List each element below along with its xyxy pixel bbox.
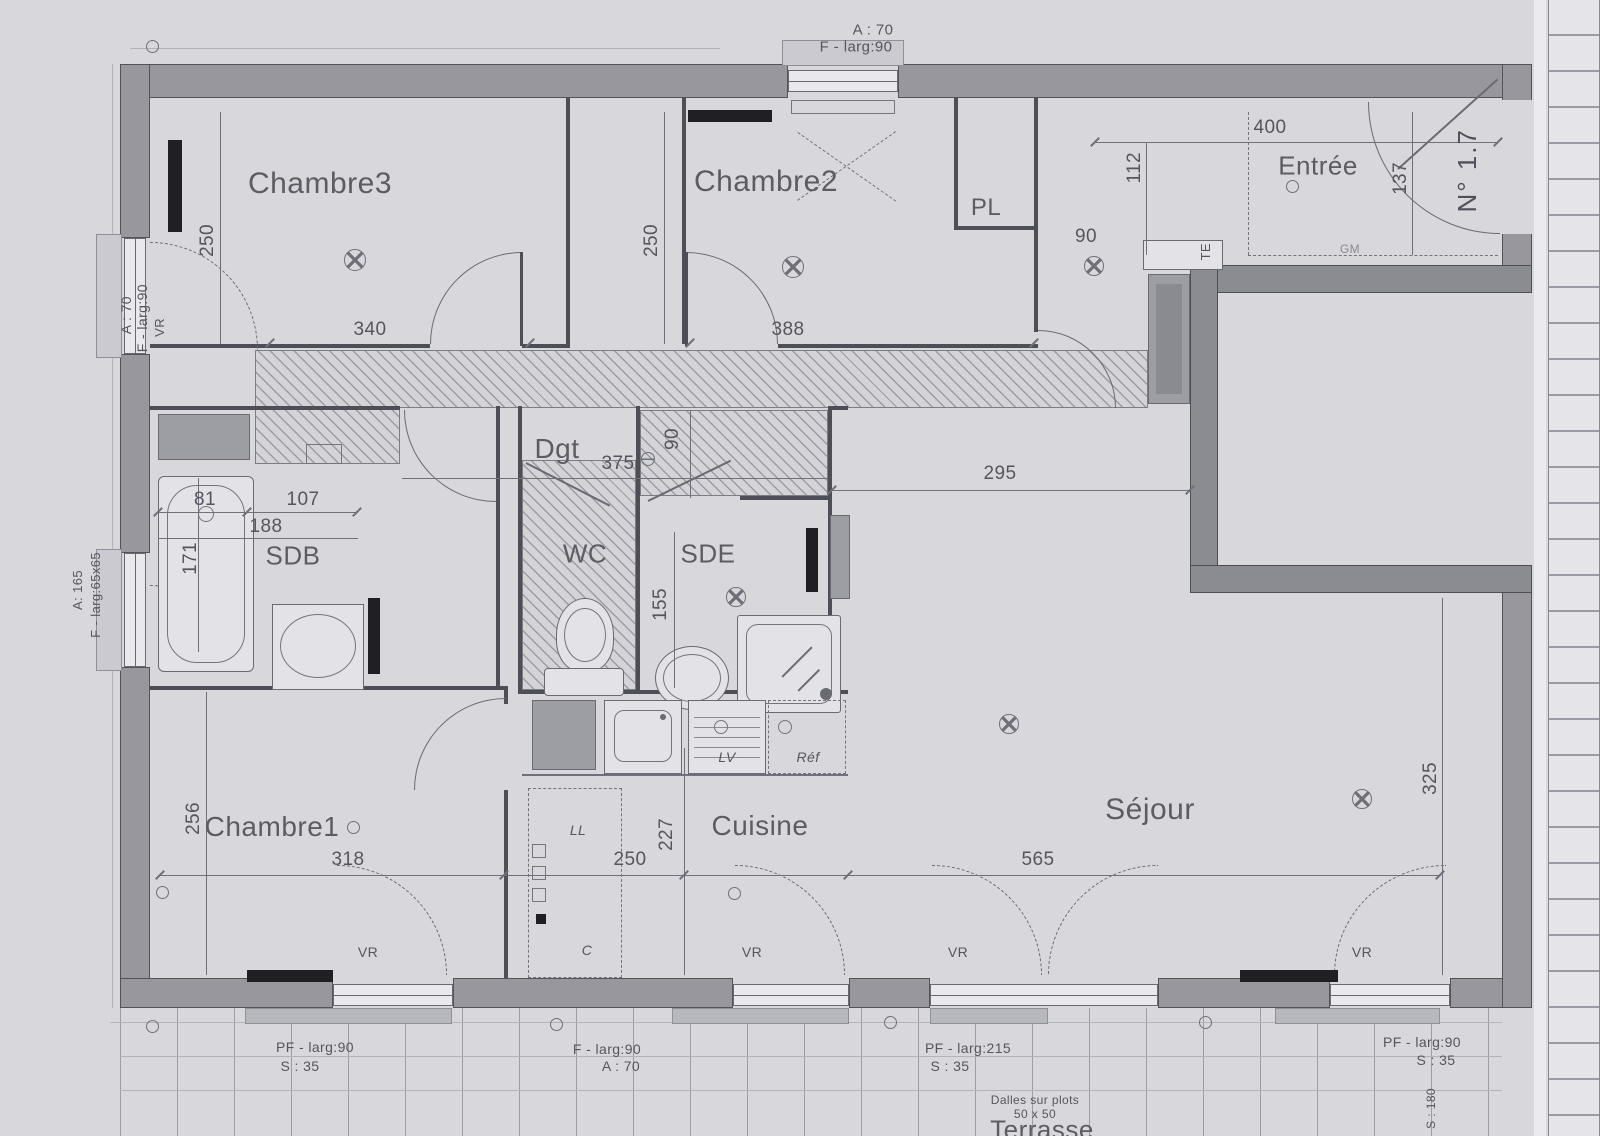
room-label-sde: SDE [681,539,736,570]
top-window-note-1: A : 70 [853,22,894,39]
vr-label: VR [742,944,762,960]
radiator-chambre2 [688,110,772,122]
top-window-note-2: F - larg:90 [820,39,893,56]
kitchen-unit [532,700,596,770]
window-left-lower [124,553,146,667]
void-wall-top [1190,265,1532,293]
dim-sejour-width: 565 [1022,849,1055,871]
dim-line [1412,112,1413,255]
dim-line [220,112,221,344]
wall-sdb-top [150,406,400,410]
room-label-entree: Entrée [1278,151,1358,182]
door-arc-chambre3 [430,252,522,344]
wall-sde-top [740,496,832,500]
vr-label: VR [948,944,968,960]
wall-chambre3-right [566,98,570,344]
left-upper-window-note-1: A : 70 [118,296,134,334]
sdb-washbasin [280,614,356,678]
fridge-label: Réf [797,749,820,765]
terrace-sill [1275,1008,1440,1024]
vr-label: VR [1352,944,1372,960]
floor-plan-scan: GM TE LV Réf LL C [0,0,1600,1136]
void-wall-left [1190,265,1218,593]
left-lower-window-note-2: F - larg:65x65 [88,552,103,638]
outlet-symbol [532,844,546,858]
terrace-sill [245,1008,452,1024]
ceiling-light-icon [782,256,804,278]
dim-line [158,512,358,513]
wall-pl-left [954,98,958,226]
corridor-floor [255,350,1148,408]
door-arc-sdb [404,410,496,502]
door-leaf-chambre3 [520,252,523,346]
dim-line [674,532,675,688]
window-chambre1 [333,984,453,1006]
dim-pl-gap: 90 [1075,226,1097,248]
wall-top-right [898,64,1532,98]
dishwasher-label: LV [718,749,735,765]
hob-symbol [778,720,792,734]
window-swing [1334,865,1446,975]
dim-chambre2-height: 250 [641,224,663,257]
duct-inner [1156,284,1182,394]
dim-line [160,875,1440,876]
wall-right-3 [1502,565,1532,1008]
wall-chambre1-right-2 [504,790,508,978]
room-label-chambre3: Chambre3 [248,167,392,201]
stair-strip [1548,0,1600,1136]
wall-left-3 [120,667,150,1008]
dim-line [832,490,1190,491]
light-point-icon [156,886,169,899]
dim-chain-line [130,48,720,49]
washer-label: LL [570,822,586,838]
bottom-note-4b: S : 35 [1417,1052,1456,1068]
sdb-duct [158,414,250,460]
vr-label: VR [358,944,378,960]
void-wall-bottom [1190,565,1532,593]
door-arc-chambre2 [686,252,778,344]
bottom-note-1a: PF - larg:90 [276,1039,354,1055]
wall-chambre2-bottom [778,344,1038,348]
wall-sdb-right [496,406,500,690]
wall-wc-right [636,406,640,693]
radiator-chambre1 [247,970,333,982]
terrace-sill [930,1008,1048,1024]
terrace-sill [672,1008,849,1024]
wall-pl-bottom [954,226,1038,230]
entree-dashed-edge [1248,112,1249,255]
dim-chambre3-height: 250 [197,224,219,257]
terrace-line [120,1090,1502,1091]
entree-dashed-edge [1248,255,1498,256]
room-label-dgt: Dgt [534,433,579,465]
ceiling-light-icon [726,587,746,607]
dim-cuisine-width: 250 [614,849,647,871]
light-point-icon [347,821,360,834]
radiator-chambre3 [168,140,182,232]
dim-line [684,748,685,975]
room-label-chambre2: Chambre2 [694,165,838,199]
datum-circle-icon [146,40,159,53]
wall-right-1 [1502,64,1532,102]
dim-hall-width: 295 [984,463,1017,485]
closet-label: C [582,942,593,958]
dim-entree-width: 400 [1254,117,1287,139]
dim-entree-door: 137 [1390,162,1412,195]
outlet-symbol [532,866,546,880]
light-point-icon [1286,180,1299,193]
wall-wc-left [518,406,522,693]
dim-dgt-width: 90 [662,428,684,450]
dim-chambre3-width: 340 [354,319,387,341]
sdb-radiator [368,598,380,674]
room-label-pl: PL [971,194,1001,222]
dim-line [664,112,665,344]
dim-line [158,538,358,539]
shower-drain [820,688,832,700]
terrace-grid [120,1008,1502,1136]
window-swing [337,865,447,975]
dim-sde-height: 155 [650,588,672,621]
dim-entree-height: 112 [1124,152,1146,184]
wall-bottom-1 [120,978,333,1008]
door-leaf-chambre2 [685,252,688,346]
wall-entree-left [1034,98,1038,332]
dim-sdb-height: 171 [180,542,202,575]
dim-line [690,410,691,498]
ceiling-light-icon [344,249,366,271]
window-swing [1048,865,1158,975]
counter-edge [522,774,848,776]
terrace-note-2: 50 x 50 [1014,1107,1056,1121]
wall-left-1 [120,64,150,238]
dim-chambre1-width: 318 [332,849,365,871]
vr-label-left: VR [152,318,167,337]
outlet-symbol [532,888,546,902]
dim-line [1146,142,1147,255]
apartment-number: N° 1.7 [1452,128,1483,213]
bottom-note-2b: A : 70 [602,1058,640,1074]
dim-chambre2-width: 388 [772,319,805,341]
wall-sde-top-stub [832,406,848,410]
bottom-note-4a: PF - larg:90 [1383,1034,1461,1050]
ceiling-light-icon [1352,789,1372,809]
small-box [306,444,342,464]
radiator-sejour [1240,970,1338,982]
ceiling-light-icon [999,714,1019,734]
laundry-box [528,788,622,978]
dim-line [1442,598,1443,975]
dim-chambre1-height: 256 [183,802,205,835]
bottom-note-3a: PF - larg:215 [925,1040,1011,1056]
dim-line [1095,142,1498,143]
bottom-note-2a: F - larg:90 [573,1041,641,1057]
dim-sdb-width: 188 [250,516,283,538]
entrance-door-opening [1502,100,1532,234]
sink-drain [660,714,666,720]
dim-chain-line [112,64,113,1008]
te-label: TE [1198,243,1213,260]
door-arc-hall [1038,330,1116,408]
terrace-side-dim: S : 180 [1424,1088,1438,1129]
window-inner-sill [791,100,895,114]
room-label-sdb: SDB [266,541,321,572]
dim-dgt-length: 375 [602,453,635,475]
terrace-note-1: Dalles sur plots [991,1093,1079,1107]
sde-vestibule-floor [640,410,828,496]
toilet-tank [544,668,624,696]
left-upper-window-note-2: F - larg:90 [134,284,150,352]
toilet-bowl-inner [564,608,606,662]
hob-symbol [714,720,728,734]
window-sejour-large [930,984,1158,1006]
door-arc-chambre1 [414,698,506,790]
dim-sdb-a: 81 [194,489,216,511]
wall-bottom-4 [1158,978,1330,1008]
room-label-wc: WC [563,539,607,570]
dim-cuisine-height: 227 [656,818,678,851]
wall-left-2 [120,354,150,553]
bottom-note-3b: S : 35 [931,1058,970,1074]
room-label-cuisine: Cuisine [712,810,809,842]
page-edge [1534,0,1546,1136]
window-top [788,70,898,92]
sde-washbasin-inner [663,654,721,702]
wall-bottom-3 [849,978,930,1008]
dim-sejour-height: 325 [1420,762,1442,795]
left-lower-window-note-1: A: 165 [70,570,85,610]
dim-line [402,478,828,479]
light-point-icon [728,887,741,900]
outlet-symbol [536,914,546,924]
datum-circle-icon [1199,1016,1212,1029]
gm-label: GM [1340,242,1360,256]
sde-radiator [806,528,818,592]
wall-top-left [120,64,788,98]
room-label-chambre1: Chambre1 [205,811,340,843]
window-sejour-right [1330,984,1450,1006]
bottom-note-1b: S : 35 [281,1058,320,1074]
dim-sdb-b: 107 [287,489,320,511]
datum-circle-icon [884,1016,897,1029]
sde-duct [830,515,850,599]
ceiling-light-icon [1084,256,1104,276]
wall-bottom-2 [453,978,733,1008]
light-point-icon [641,452,655,466]
terrace-line [120,1056,1502,1057]
datum-circle-icon [550,1018,563,1031]
datum-circle-icon [146,1020,159,1033]
window-cuisine [733,984,849,1006]
room-label-sejour: Séjour [1105,793,1195,827]
